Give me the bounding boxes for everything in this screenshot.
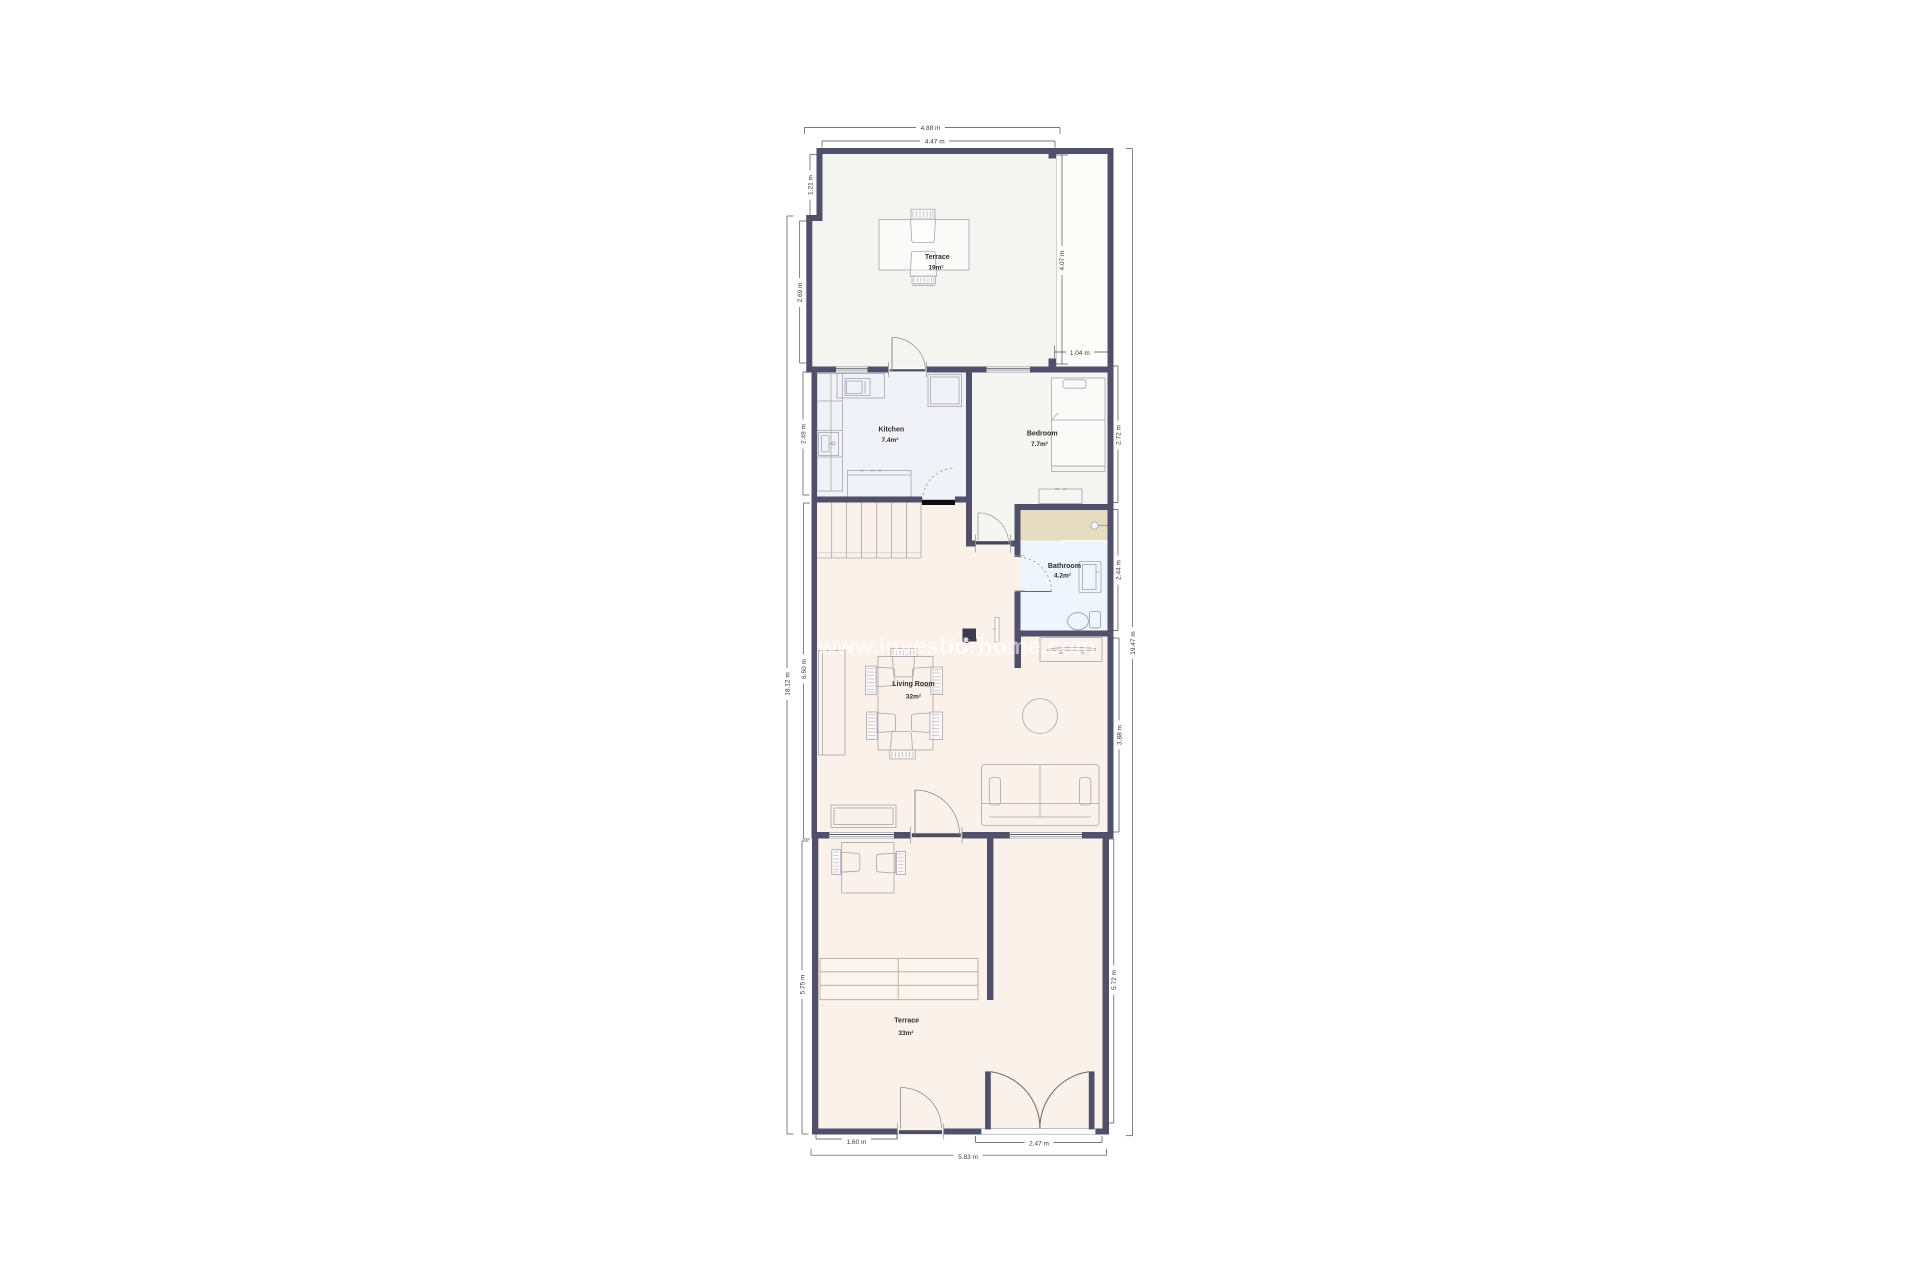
svg-text:www.investforhome.com: www.investforhome.com	[817, 633, 1095, 659]
svg-text:4.47 m: 4.47 m	[925, 139, 945, 146]
svg-text:5.72 m: 5.72 m	[1111, 970, 1118, 990]
svg-text:Kitchen: Kitchen	[878, 426, 904, 433]
svg-text:Bedroom: Bedroom	[1027, 431, 1058, 438]
svg-text:Terrace: Terrace	[925, 254, 950, 261]
svg-text:2.49 m: 2.49 m	[800, 424, 807, 444]
svg-text:2.72 m: 2.72 m	[1115, 425, 1122, 445]
svg-text:5.75 m: 5.75 m	[799, 975, 806, 995]
svg-text:6.50 m: 6.50 m	[801, 659, 808, 679]
svg-text:Terrace: Terrace	[894, 1018, 919, 1025]
svg-text:3.88 m: 3.88 m	[1116, 725, 1123, 745]
svg-text:1.04 m: 1.04 m	[1070, 350, 1090, 357]
svg-text:5.83 m: 5.83 m	[958, 1154, 978, 1161]
svg-text:Bathroom: Bathroom	[1048, 563, 1081, 570]
svg-text:1.60 m: 1.60 m	[847, 1139, 867, 1146]
svg-text:19.47 m: 19.47 m	[1130, 631, 1137, 655]
svg-text:2.44 m: 2.44 m	[1115, 560, 1122, 580]
svg-text:2.69 m: 2.69 m	[797, 283, 804, 303]
svg-text:2.47 m: 2.47 m	[1029, 1141, 1049, 1148]
svg-text:18.12 m: 18.12 m	[784, 672, 791, 696]
svg-text:Living Room: Living Room	[892, 681, 934, 688]
svg-text:1.21 m: 1.21 m	[807, 175, 814, 195]
svg-text:4.07 m: 4.07 m	[1059, 251, 1066, 271]
svg-text:4.88 m: 4.88 m	[921, 125, 941, 132]
